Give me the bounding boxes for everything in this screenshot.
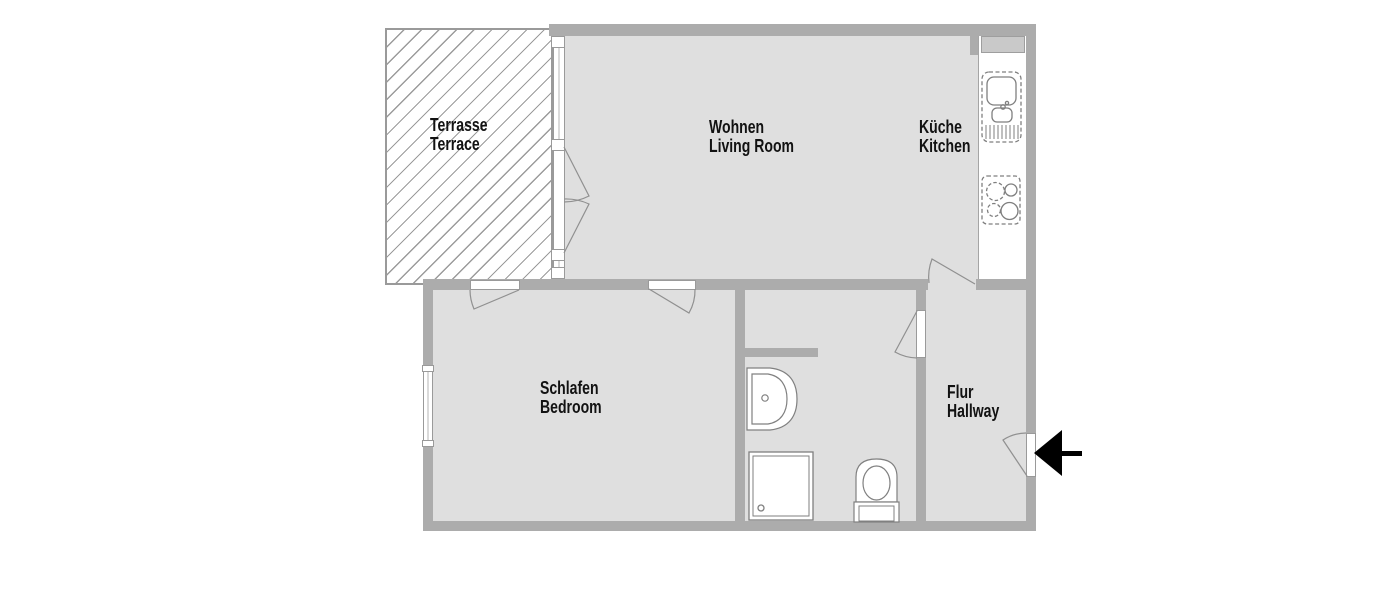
bedroom-label: Schlafen Bedroom	[540, 379, 602, 416]
terrace-label-de: Terrasse	[430, 116, 488, 135]
sink-basin-large	[987, 77, 1016, 105]
basin-outer	[747, 368, 797, 430]
door-entrance-leaf	[1003, 433, 1027, 476]
stove-icon	[982, 176, 1020, 224]
kitchen-sink-icon	[982, 72, 1021, 142]
door-living-bedroom-leaf	[649, 289, 695, 313]
living-room-label-de: Wohnen	[709, 118, 794, 137]
stove-outline	[982, 176, 1020, 224]
french-door-top-leaf	[564, 147, 589, 202]
plan-symbols	[0, 0, 1400, 600]
bedroom-label-de: Schlafen	[540, 379, 602, 398]
floor-plan: Terrasse Terrace Wohnen Living Room Küch…	[0, 0, 1400, 600]
toilet-icon	[854, 459, 899, 522]
door-bathroom-leaf	[895, 311, 917, 358]
entrance-arrow-icon	[1034, 430, 1082, 476]
hallway-label-en: Hallway	[947, 402, 999, 421]
door-kitchen-hallway-leaf	[929, 259, 975, 284]
sink-basin-small	[992, 108, 1012, 122]
living-room-label: Wohnen Living Room	[709, 118, 794, 155]
toilet-tank-outer	[854, 502, 899, 522]
kitchen-label: Küche Kitchen	[919, 118, 970, 155]
kitchen-label-de: Küche	[919, 118, 970, 137]
terrace-label: Terrasse Terrace	[430, 116, 488, 153]
living-room-label-en: Living Room	[709, 137, 794, 156]
terrace-label-en: Terrace	[430, 135, 488, 154]
kitchen-label-en: Kitchen	[919, 137, 970, 156]
french-door-bottom-leaf	[564, 199, 589, 253]
shower-icon	[749, 452, 813, 520]
hallway-label: Flur Hallway	[947, 383, 999, 420]
hallway-label-de: Flur	[947, 383, 999, 402]
wash-basin-icon	[747, 368, 797, 430]
door-terrace-bedroom-leaf	[470, 290, 519, 309]
bedroom-label-en: Bedroom	[540, 398, 602, 417]
door-swings	[428, 48, 1027, 476]
